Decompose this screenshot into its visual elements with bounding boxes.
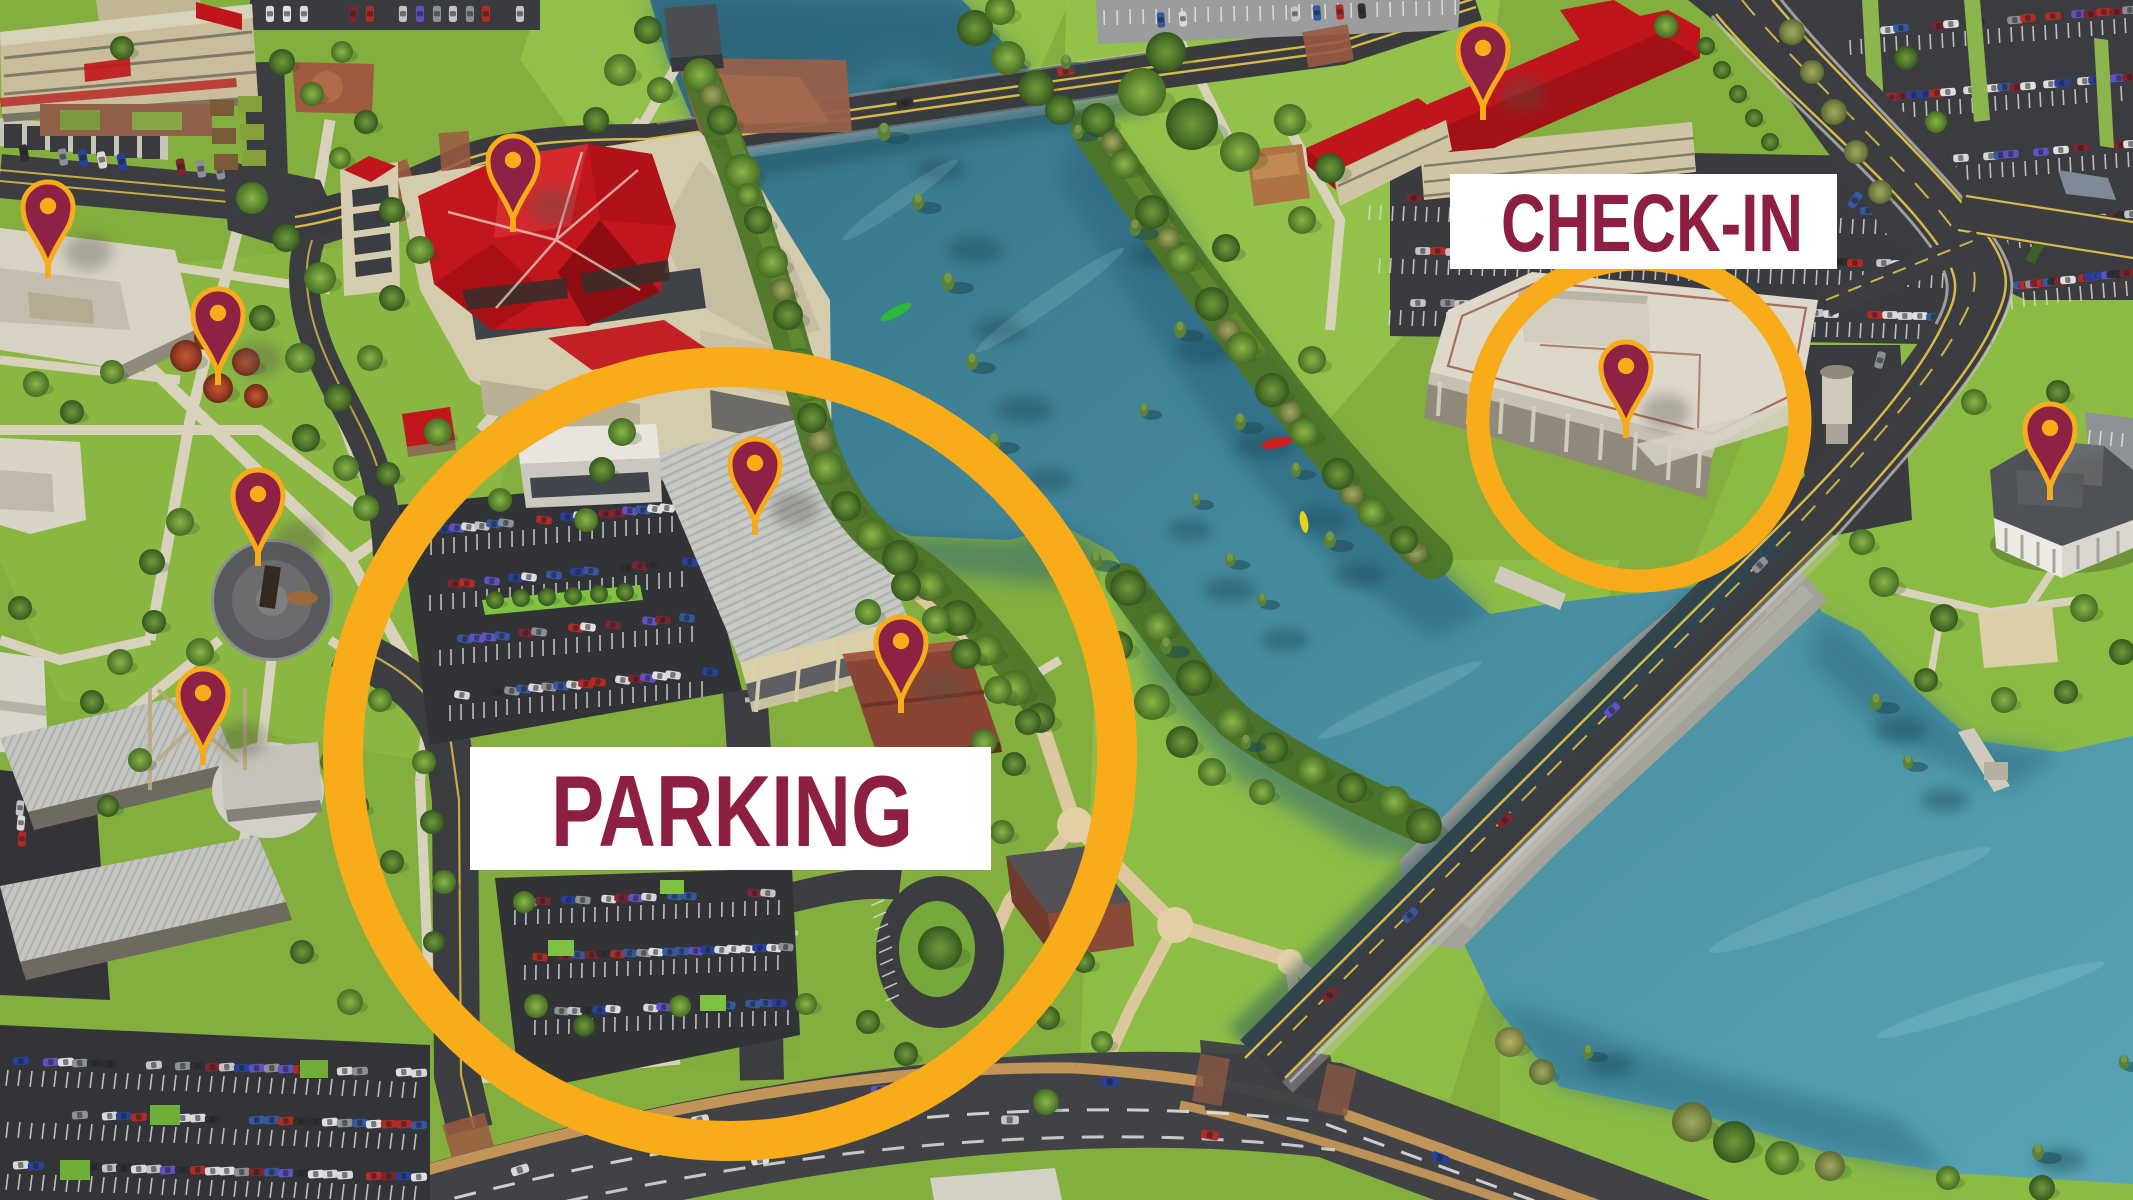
svg-text:CHECK-IN: CHECK-IN (1501, 178, 1803, 269)
svg-text:PARKING: PARKING (551, 756, 913, 868)
